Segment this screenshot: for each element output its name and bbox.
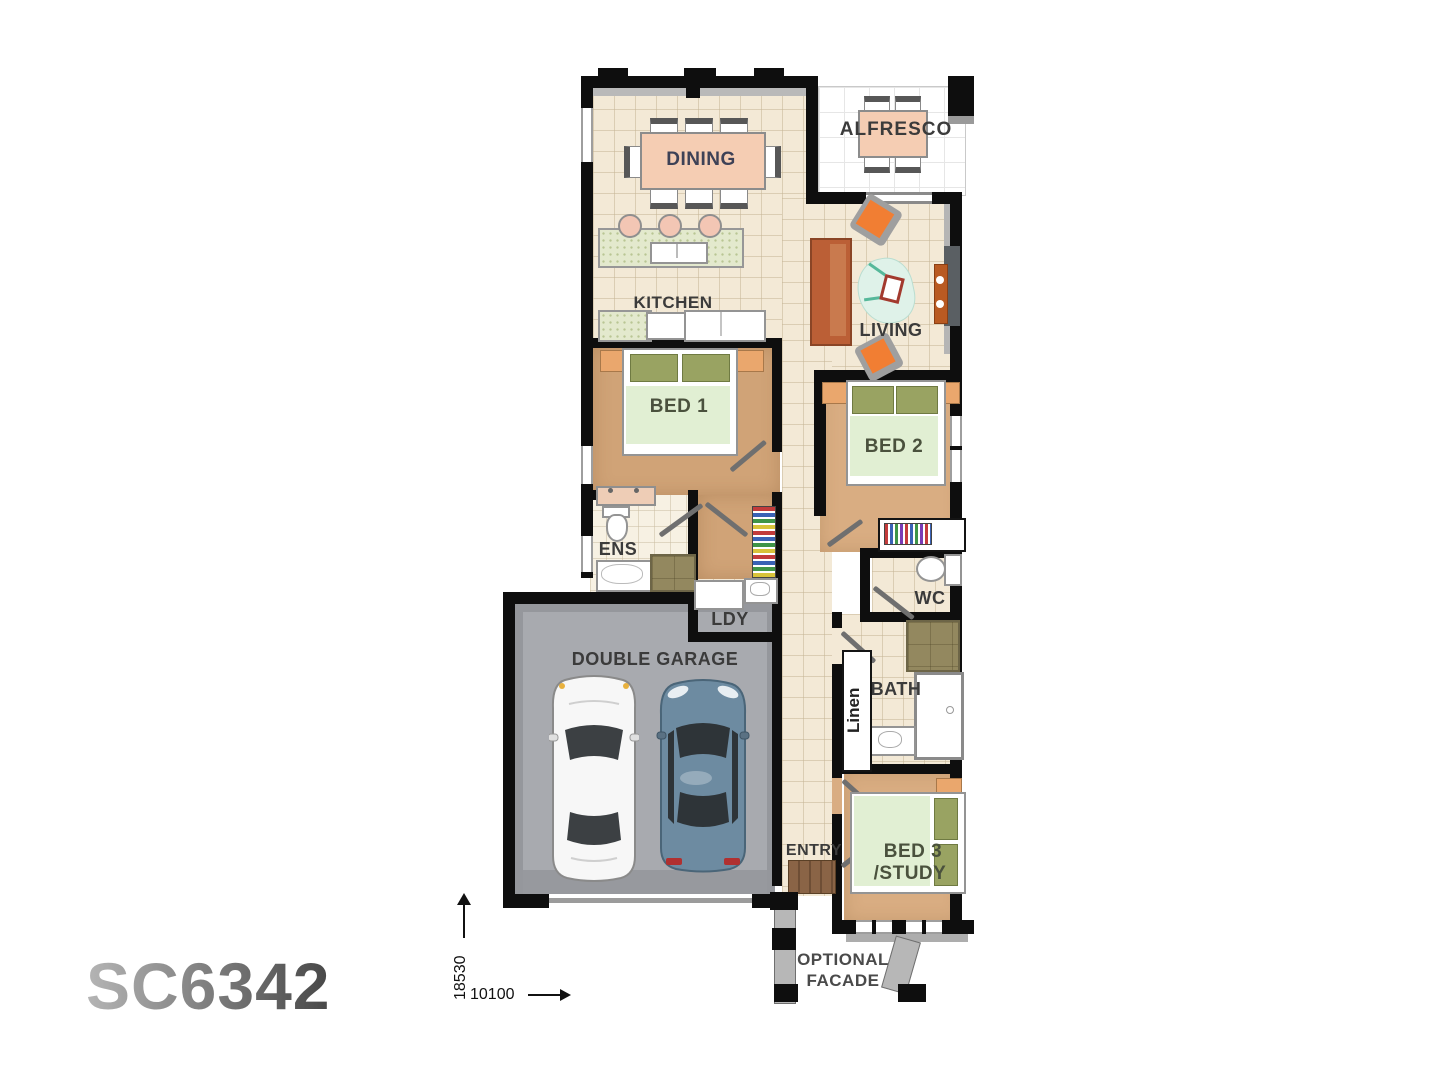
bath-shower-handle — [946, 706, 954, 714]
dim-horizontal-arrowhead — [560, 989, 571, 1001]
window-left-bed1 — [581, 446, 593, 484]
window-bed3-a-mullion — [872, 920, 876, 934]
dim-horizontal-value: 10100 — [470, 986, 515, 1004]
tv-item — [936, 276, 944, 284]
wall-garage-left — [503, 592, 515, 906]
wall-ldy-bottom — [688, 632, 782, 642]
window-right-bed2b — [950, 450, 962, 482]
kitchen-stool — [618, 214, 642, 238]
bed2-robe-clothes — [884, 523, 932, 545]
bath-cabinet — [906, 620, 960, 672]
ens-bathtub-inner — [601, 564, 643, 584]
facade-label-line1: OPTIONAL — [793, 950, 893, 970]
plan-code: SC6342 — [86, 948, 331, 1024]
kitchen-stool — [658, 214, 682, 238]
tv-item — [936, 300, 944, 308]
ldy-label: LDY — [700, 609, 760, 630]
bed3-label-line2: /STUDY — [860, 863, 960, 885]
wall-living-top-left — [806, 192, 866, 204]
wall-bed1-hall — [772, 338, 782, 452]
facade-post — [898, 984, 926, 1002]
bed1-label: BED 1 — [629, 396, 729, 418]
wall-top-pier-2 — [684, 68, 716, 78]
facade-post — [772, 928, 796, 950]
facade-label-line2: FACADE — [793, 971, 893, 991]
wall-top-pier-3 — [754, 68, 784, 78]
kitchen-sink-divider — [676, 244, 678, 258]
ens-vanity — [596, 486, 656, 506]
ldy-washer — [694, 580, 744, 610]
kitchen-bench-line — [720, 312, 722, 336]
kitchen-cooktop — [646, 312, 688, 340]
window-bed3-b-mullion — [922, 920, 926, 934]
bed1-pillow — [630, 354, 678, 382]
wc-cistern — [944, 554, 962, 586]
window-left-dining — [581, 108, 593, 162]
white-car — [549, 672, 639, 884]
dining-window-mullion — [686, 86, 700, 98]
bed1-robe-clothes — [752, 506, 776, 578]
floorplan-scene: DINING ALFRESCO KITCHEN LIVING BED 1 BED… — [0, 0, 1440, 1080]
bed2-bedside-left — [822, 382, 848, 404]
wall-dining-alfresco — [806, 76, 818, 204]
living-label: LIVING — [841, 320, 941, 341]
kitchen-bench-left — [598, 310, 652, 342]
linen-label: Linen — [844, 662, 866, 758]
wc-bowl — [916, 556, 946, 582]
bed2-pillow — [896, 386, 938, 414]
tv-credenza — [934, 264, 948, 324]
alfresco-label: ALFRESCO — [826, 119, 966, 141]
kitchen-bench-right — [684, 310, 766, 342]
blue-car — [656, 676, 750, 874]
kitchen-stool — [698, 214, 722, 238]
ens-label: ENS — [590, 539, 646, 560]
bed2-pillow — [852, 386, 894, 414]
wall-hall-garage — [772, 576, 782, 886]
bed2-label: BED 2 — [844, 436, 944, 458]
bed1-bedside-right — [736, 350, 764, 372]
entry-mat — [788, 860, 836, 894]
entry-label: ENTRY — [784, 842, 844, 860]
garage-label: DOUBLE GARAGE — [565, 649, 745, 670]
bath-vanity-basin — [878, 731, 902, 748]
ens-toilet-bowl — [606, 514, 628, 542]
window-right-bed2a — [950, 416, 962, 446]
dim-vertical-arrowhead — [457, 893, 471, 905]
wall-garage-bottom-left — [503, 894, 549, 908]
garage-door-line — [549, 898, 752, 903]
dim-vertical-value: 18530 — [452, 940, 470, 1000]
wall-wc-left — [860, 548, 870, 622]
dim-horizontal-line — [528, 994, 560, 996]
facade-post — [770, 892, 798, 910]
ldy-trough-bowl — [750, 582, 770, 596]
wall-garage-top — [503, 592, 699, 604]
bed3-label-line1: BED 3 — [868, 841, 958, 863]
bed1-pillow — [682, 354, 730, 382]
ens-shower — [650, 554, 696, 592]
bed3-pillow — [934, 798, 958, 840]
dim-vertical-line — [463, 904, 465, 938]
kitchen-sink — [650, 242, 708, 264]
bed3-door-gap — [832, 778, 842, 814]
wc-label: WC — [900, 588, 960, 609]
ens-tap — [634, 488, 639, 493]
ens-tap — [608, 488, 613, 493]
dining-label: DINING — [648, 149, 754, 171]
wall-top-pier-1 — [598, 68, 628, 78]
